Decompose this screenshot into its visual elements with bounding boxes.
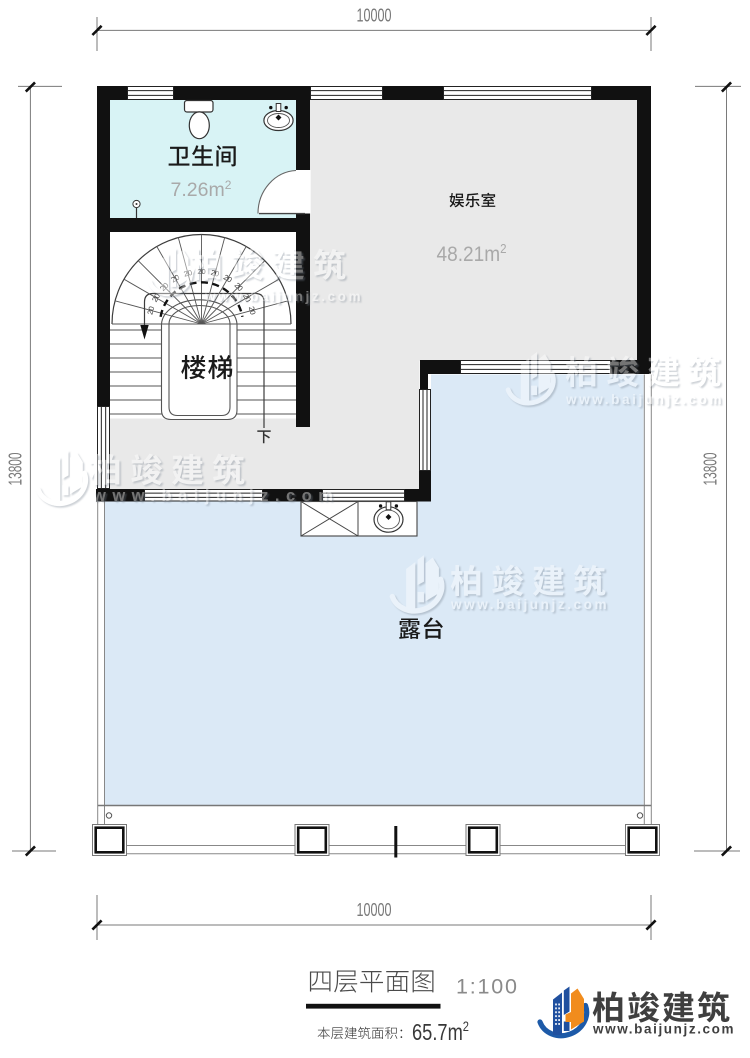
svg-text:7.26m2: 7.26m2 [171,178,232,201]
svg-text:10000: 10000 [357,6,392,26]
svg-text:65.7m2: 65.7m2 [412,1018,469,1045]
svg-text:www.baijunjz.com: www.baijunjz.com [565,392,724,407]
svg-text:www.baijunjz.com: www.baijunjz.com [92,487,339,505]
svg-text:www.baijunjz.com: www.baijunjz.com [204,289,363,304]
svg-text:13800: 13800 [6,453,26,486]
svg-text:www.baijunjz.com: www.baijunjz.com [592,1022,735,1037]
svg-text:13800: 13800 [701,453,721,486]
svg-text:www.baijunjz.com: www.baijunjz.com [450,597,609,612]
svg-text:1:100: 1:100 [456,975,519,999]
svg-text:48.21m2: 48.21m2 [437,241,507,266]
svg-text:10000: 10000 [357,900,392,920]
